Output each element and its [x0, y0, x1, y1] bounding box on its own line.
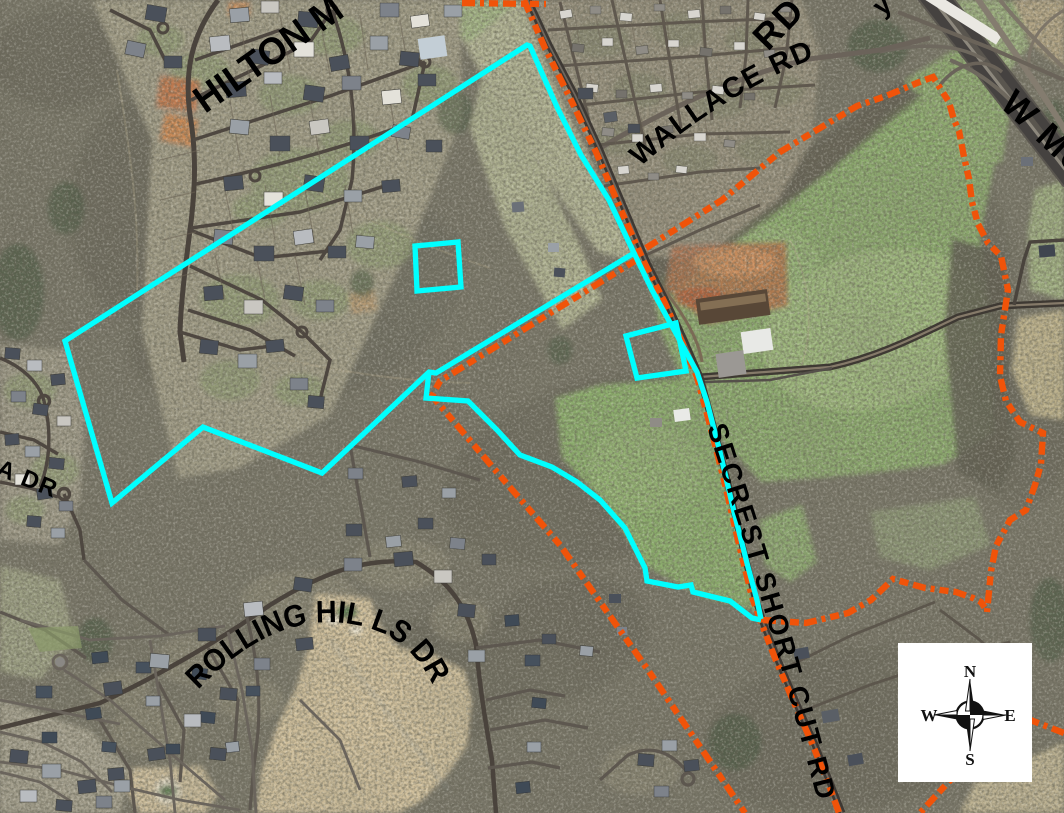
- svg-text:S: S: [965, 750, 974, 769]
- svg-text:W: W: [921, 706, 938, 725]
- svg-text:N: N: [964, 662, 977, 681]
- svg-text:E: E: [1004, 706, 1015, 725]
